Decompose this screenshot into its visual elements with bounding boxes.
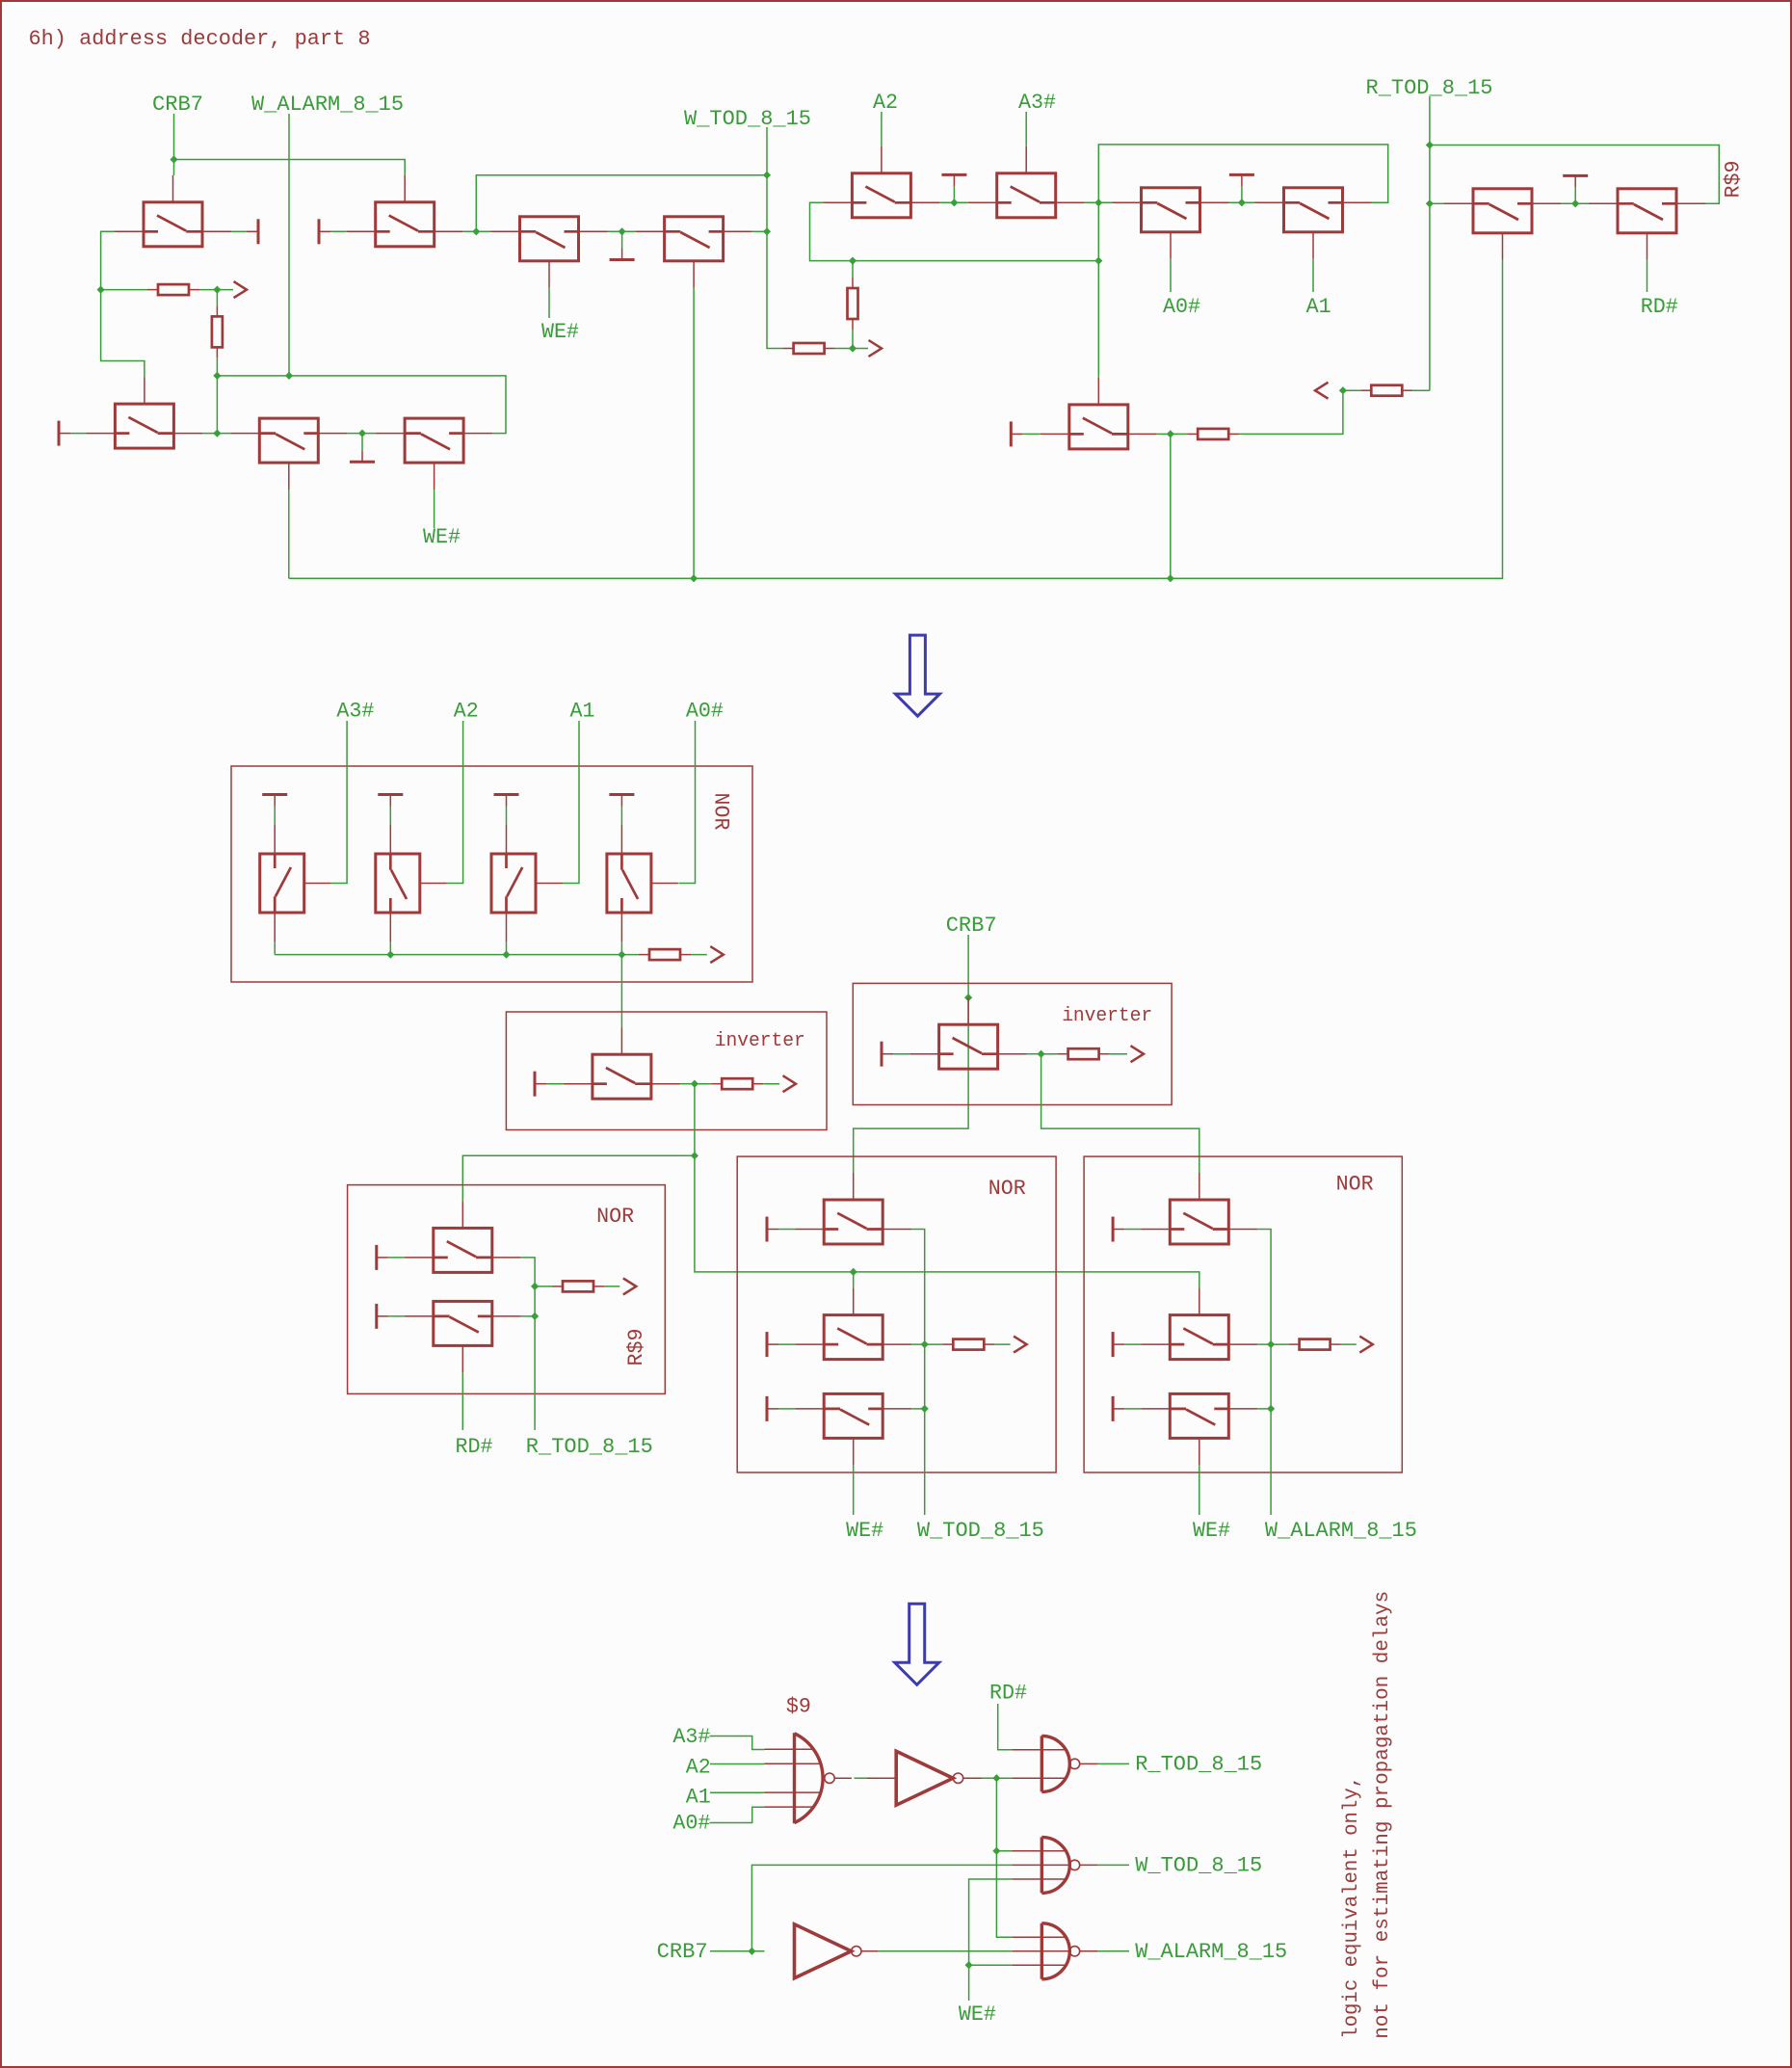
svg-text:R_TOD_8_15: R_TOD_8_15 [1135, 1751, 1262, 1776]
svg-text:W_TOD_8_15: W_TOD_8_15 [1135, 1852, 1262, 1877]
svg-text:W_TOD_8_15: W_TOD_8_15 [917, 1518, 1044, 1543]
svg-text:A1: A1 [1306, 294, 1331, 319]
svg-text:WE#: WE# [1193, 1518, 1230, 1543]
svg-text:$9: $9 [786, 1694, 811, 1719]
svg-text:R$9: R$9 [623, 1329, 648, 1366]
svg-text:A0#: A0# [1163, 294, 1200, 319]
svg-text:RD#: RD# [989, 1680, 1027, 1705]
svg-text:logic equivalent only,: logic equivalent only, [1340, 1776, 1363, 2039]
svg-text:WE#: WE# [423, 524, 461, 549]
svg-text:CRB7: CRB7 [946, 913, 997, 938]
svg-text:A2: A2 [454, 699, 479, 724]
svg-text:W_ALARM_8_15: W_ALARM_8_15 [1135, 1939, 1287, 1964]
svg-text:6h) address decoder, part 8: 6h) address decoder, part 8 [29, 26, 371, 51]
svg-text:A1: A1 [570, 699, 595, 724]
svg-text:A0#: A0# [672, 1811, 710, 1836]
svg-text:R_TOD_8_15: R_TOD_8_15 [526, 1434, 653, 1459]
svg-text:WE#: WE# [846, 1518, 883, 1543]
svg-text:A3#: A3# [672, 1724, 710, 1749]
svg-text:NOR: NOR [709, 793, 734, 831]
svg-text:A3#: A3# [1018, 90, 1056, 115]
svg-text:inverter: inverter [1062, 1005, 1152, 1027]
svg-text:inverter: inverter [715, 1030, 805, 1052]
svg-text:CRB7: CRB7 [657, 1939, 708, 1964]
svg-text:NOR: NOR [988, 1176, 1026, 1201]
svg-text:A0#: A0# [686, 699, 724, 724]
svg-text:W_ALARM_8_15: W_ALARM_8_15 [251, 92, 404, 117]
svg-text:WE#: WE# [959, 2002, 996, 2027]
svg-text:A2: A2 [686, 1754, 711, 1779]
svg-text:W_TOD_8_15: W_TOD_8_15 [684, 106, 811, 131]
svg-text:A2: A2 [873, 90, 898, 115]
svg-text:not for estimating propagation: not for estimating propagation delays [1371, 1591, 1394, 2039]
svg-text:RD#: RD# [1641, 294, 1678, 319]
svg-text:NOR: NOR [1336, 1172, 1374, 1197]
svg-text:CRB7: CRB7 [152, 92, 203, 117]
svg-text:RD#: RD# [456, 1434, 493, 1459]
svg-text:NOR: NOR [596, 1204, 634, 1229]
svg-text:A1: A1 [686, 1784, 711, 1809]
svg-text:W_ALARM_8_15: W_ALARM_8_15 [1265, 1518, 1417, 1543]
svg-text:WE#: WE# [541, 319, 579, 344]
svg-text:R$9: R$9 [1721, 161, 1746, 199]
svg-text:A3#: A3# [336, 699, 374, 724]
